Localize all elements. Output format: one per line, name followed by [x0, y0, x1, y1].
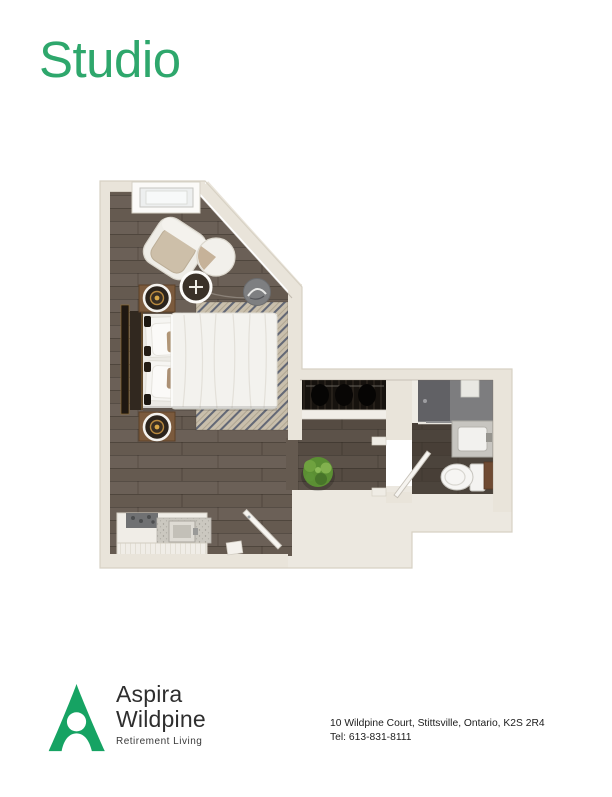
- faucet: [486, 433, 492, 442]
- brand-name-line2: Wildpine: [116, 707, 206, 732]
- bed: [121, 305, 277, 414]
- brand-logo: Aspira Wildpine Retirement Living: [46, 682, 206, 753]
- phone-line: Tel: 613-831-8111: [330, 731, 545, 745]
- pouf: [244, 279, 271, 306]
- shower-shelf: [461, 378, 479, 397]
- brand-wordmark: Aspira Wildpine Retirement Living: [116, 682, 206, 747]
- toilet: [441, 464, 485, 491]
- wall-art: [121, 305, 129, 414]
- closet-ledge: [299, 410, 390, 419]
- entry-threshold: [226, 541, 243, 555]
- brand-name-line1: Aspira: [116, 682, 206, 707]
- vanity: [452, 421, 493, 457]
- contact-block: 10 Wildpine Court, Stittsville, Ontario,…: [330, 717, 545, 745]
- nightstand-top: [139, 285, 175, 312]
- nightstand-bottom: [139, 412, 175, 441]
- shower: [412, 378, 493, 423]
- floor-plan: [0, 0, 612, 792]
- brand-tagline: Retirement Living: [116, 736, 206, 747]
- side-table: [197, 238, 235, 276]
- aspira-logo-icon: [46, 682, 108, 753]
- address-line: 10 Wildpine Court, Stittsville, Ontario,…: [330, 717, 545, 731]
- window: [132, 182, 200, 213]
- closet: [299, 377, 390, 419]
